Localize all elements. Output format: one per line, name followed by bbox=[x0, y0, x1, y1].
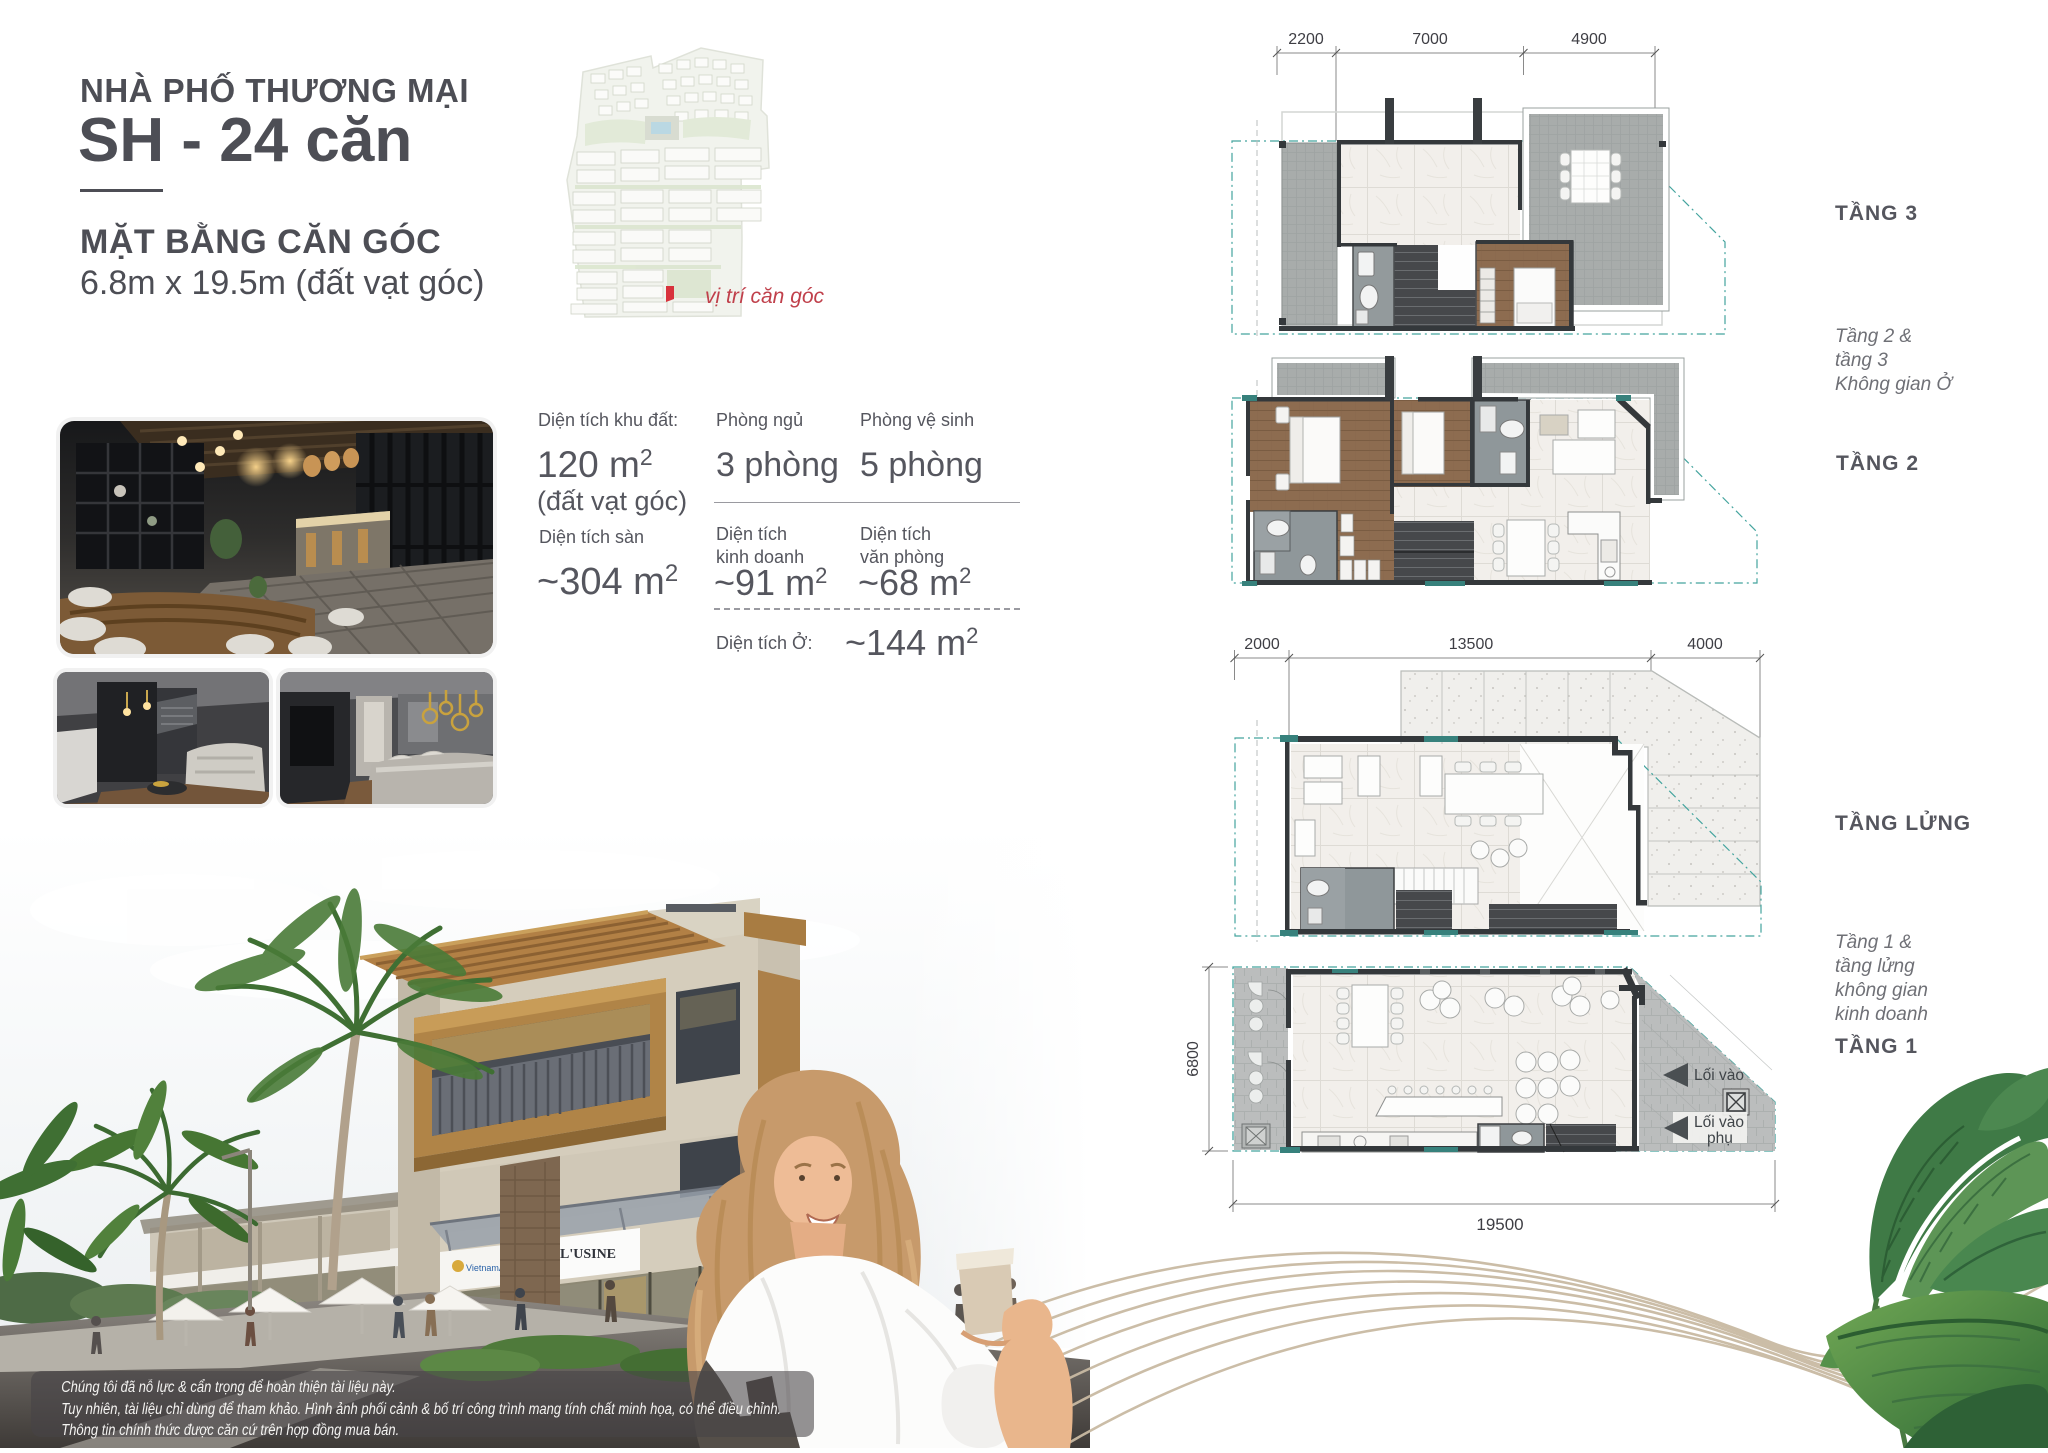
svg-text:không gian: không gian bbox=[1835, 980, 1928, 1001]
svg-text:phụ: phụ bbox=[1707, 1130, 1733, 1147]
svg-text:2200: 2200 bbox=[1288, 31, 1324, 48]
svg-text:2000: 2000 bbox=[1244, 636, 1280, 653]
svg-text:6800: 6800 bbox=[1185, 1041, 1202, 1077]
svg-text:L'USINE: L'USINE bbox=[560, 1247, 616, 1262]
svg-text:4000: 4000 bbox=[1687, 636, 1723, 653]
svg-text:Tầng 1 &: Tầng 1 & bbox=[1835, 932, 1912, 953]
svg-text:Lối vào: Lối vào bbox=[1694, 1114, 1744, 1131]
svg-text:Không gian Ở: Không gian Ở bbox=[1835, 373, 1954, 395]
svg-text:13500: 13500 bbox=[1449, 636, 1494, 653]
svg-text:7000: 7000 bbox=[1412, 31, 1448, 48]
svg-text:kinh doanh: kinh doanh bbox=[1835, 1004, 1928, 1025]
svg-text:Tầng 2 &: Tầng 2 & bbox=[1835, 326, 1912, 347]
svg-text:19500: 19500 bbox=[1476, 1215, 1523, 1234]
svg-text:TẦNG 2: TẦNG 2 bbox=[1836, 452, 1919, 475]
svg-text:TẦNG LỬNG: TẦNG LỬNG bbox=[1835, 811, 1971, 835]
svg-text:4900: 4900 bbox=[1571, 31, 1607, 48]
svg-text:tầng 3: tầng 3 bbox=[1835, 350, 1888, 371]
svg-text:TẦNG 3: TẦNG 3 bbox=[1835, 202, 1918, 225]
svg-text:Lối vào: Lối vào bbox=[1694, 1067, 1744, 1084]
svg-text:TẦNG 1: TẦNG 1 bbox=[1835, 1035, 1918, 1058]
svg-text:tầng lửng: tầng lửng bbox=[1835, 956, 1915, 977]
